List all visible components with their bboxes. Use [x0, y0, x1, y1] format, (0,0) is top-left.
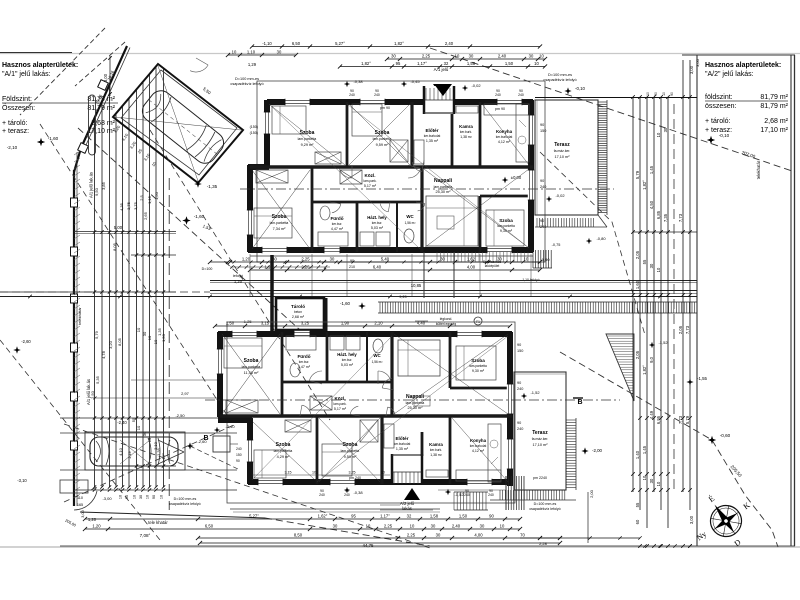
svg-text:9,59 m²: 9,59 m² [376, 143, 390, 147]
svg-text:ker.bur.: ker.bur. [299, 360, 310, 364]
svg-text:165: 165 [77, 503, 83, 507]
svg-text:5,27°: 5,27° [335, 41, 345, 46]
svg-text:Előtér: Előtér [395, 436, 408, 441]
svg-text:beton: beton [294, 310, 302, 314]
svg-text:(150): (150) [250, 131, 258, 135]
svg-text:-1,60: -1,60 [194, 214, 205, 219]
svg-text:10: 10 [145, 495, 149, 499]
svg-text:-0,10: -0,10 [575, 86, 586, 91]
svg-text:55: 55 [131, 417, 136, 422]
svg-text:D=100: D=100 [202, 267, 213, 271]
svg-text:Szoba: Szoba [244, 358, 259, 364]
svg-text:240: 240 [518, 93, 524, 97]
svg-text:3,25: 3,25 [301, 321, 310, 326]
svg-text:Kamra: Kamra [429, 442, 443, 447]
svg-text:A/1 jelű: A/1 jelű [434, 67, 449, 72]
svg-text:Terasz: Terasz [532, 430, 548, 436]
svg-text:30: 30 [663, 127, 668, 132]
svg-text:10: 10 [153, 339, 158, 344]
svg-text:30: 30 [391, 54, 396, 59]
svg-text:30: 30 [529, 54, 534, 59]
svg-text:6,40: 6,40 [373, 265, 382, 270]
svg-text:A/1 jelű lak.ás: A/1 jelű lak.ás [86, 379, 91, 405]
svg-text:1,15: 1,15 [147, 195, 152, 204]
svg-text:95: 95 [351, 514, 356, 519]
svg-text:2,05: 2,05 [635, 350, 640, 359]
svg-text:ker.burk.: ker.burk. [460, 130, 472, 134]
svg-text:pm 90: pm 90 [495, 107, 505, 111]
svg-text:1,35 m²: 1,35 m² [396, 447, 409, 451]
svg-text:-0,02: -0,02 [555, 193, 565, 198]
svg-text:30: 30 [330, 257, 335, 262]
svg-text:30: 30 [649, 478, 654, 483]
svg-text:7,35: 7,35 [663, 213, 668, 222]
svg-text:9,50: 9,50 [94, 187, 99, 196]
svg-text:+ tároló:: + tároló: [2, 120, 28, 127]
svg-text:30: 30 [142, 331, 147, 336]
svg-text:-2,10: -2,10 [7, 145, 18, 150]
svg-text:30: 30 [436, 533, 441, 538]
svg-text:3,00: 3,00 [81, 510, 85, 517]
svg-text:3,20: 3,20 [108, 340, 113, 349]
svg-text:csapadékvíz lefolyó: csapadékvíz lefolyó [529, 507, 560, 511]
svg-text:240: 240 [349, 93, 355, 97]
svg-text:6,85: 6,85 [656, 210, 661, 219]
svg-text:8,05: 8,05 [117, 337, 122, 346]
svg-text:csapadékvíz lefolyó: csapadékvíz lefolyó [230, 82, 263, 86]
svg-text:7,73: 7,73 [678, 213, 683, 222]
svg-text:5,35: 5,35 [95, 375, 100, 384]
svg-text:240: 240 [464, 493, 470, 497]
svg-text:2,28: 2,28 [539, 541, 548, 546]
svg-text:240: 240 [488, 493, 494, 497]
svg-text:D=100 mm-es: D=100 mm-es [235, 77, 259, 81]
svg-text:150: 150 [517, 349, 523, 353]
svg-text:ker.burkolat: ker.burkolat [394, 442, 411, 446]
svg-text:Házt. hely: Házt. hely [337, 352, 357, 357]
svg-text:95: 95 [396, 61, 401, 66]
svg-text:2,10: 2,10 [374, 321, 383, 326]
svg-text:-3,10: -3,10 [17, 478, 27, 483]
svg-text:2,05: 2,05 [635, 250, 640, 259]
svg-text:32: 32 [407, 514, 412, 519]
svg-text:1,17°: 1,17° [417, 61, 427, 66]
svg-text:Kamra: Kamra [459, 124, 473, 129]
svg-text:4,00: 4,00 [474, 533, 483, 538]
svg-text:5,79: 5,79 [635, 170, 640, 179]
svg-text:10: 10 [646, 92, 650, 96]
svg-text:5,00: 5,00 [114, 225, 123, 230]
svg-text:1,45: 1,45 [642, 445, 647, 454]
svg-text:Terasz: Terasz [554, 142, 570, 148]
svg-text:10: 10 [232, 50, 237, 55]
svg-text:-1,60: -1,60 [48, 136, 59, 141]
svg-text:-0,75: -0,75 [552, 243, 561, 247]
svg-text:Nappali: Nappali [434, 178, 453, 184]
svg-text:-2,40: -2,40 [117, 420, 127, 425]
svg-text:D=100 mm-es: D=100 mm-es [548, 73, 572, 77]
svg-text:lefolyó: lefolyó [233, 274, 243, 278]
svg-text:17,10 m²: 17,10 m² [533, 443, 549, 447]
svg-text:1,82°: 1,82° [642, 180, 647, 190]
svg-text:Hasznos alapterületek:: Hasznos alapterületek: [2, 62, 78, 69]
svg-text:csapadékvíz lefolyó: csapadékvíz lefolyó [169, 502, 200, 506]
svg-text:30: 30 [469, 54, 474, 59]
svg-text:30: 30 [333, 524, 338, 529]
svg-text:2,25: 2,25 [301, 257, 310, 262]
svg-text:4,10: 4,10 [118, 447, 123, 456]
svg-text:1,20: 1,20 [88, 517, 97, 522]
svg-text:4,49: 4,49 [649, 410, 654, 419]
svg-text:10: 10 [410, 524, 415, 529]
svg-text:2,25: 2,25 [384, 524, 393, 529]
svg-text:1,10 lefolyó: 1,10 lefolyó [522, 278, 539, 282]
svg-text:3,00: 3,00 [695, 58, 700, 67]
svg-text:90: 90 [540, 179, 544, 183]
svg-text:-3,00: -3,00 [102, 496, 112, 501]
svg-text:-1,52: -1,52 [454, 492, 464, 497]
svg-text:1,82°: 1,82° [361, 61, 371, 66]
svg-text:1,62°: 1,62° [318, 514, 328, 519]
svg-text:1,50: 1,50 [226, 321, 235, 326]
svg-text:-1,52: -1,52 [530, 390, 540, 395]
svg-text:4,29 m²: 4,29 m² [277, 455, 291, 459]
svg-text:2,68 m²: 2,68 m² [764, 118, 788, 125]
svg-text:5,27°: 5,27° [249, 514, 259, 519]
svg-text:4,35: 4,35 [119, 202, 124, 211]
svg-text:10: 10 [312, 471, 316, 475]
svg-text:2,97: 2,97 [181, 391, 190, 396]
svg-text:1,58: 1,58 [467, 61, 476, 66]
svg-text:telekhatár: telekhatár [77, 307, 82, 325]
svg-text:10: 10 [656, 267, 661, 272]
svg-text:Előtér: Előtér [425, 128, 438, 133]
svg-text:8,05: 8,05 [112, 242, 117, 251]
svg-text:-1,25: -1,25 [242, 319, 252, 324]
svg-text:lam.parketta: lam.parketta [270, 221, 289, 225]
svg-text:-0,02: -0,02 [471, 83, 481, 88]
svg-text:3,75: 3,75 [133, 201, 138, 210]
svg-text:10: 10 [656, 481, 661, 486]
svg-text:ker.bur.: ker.bur. [332, 222, 343, 226]
svg-text:pm 90: pm 90 [380, 106, 390, 110]
svg-text:240: 240 [517, 387, 523, 391]
svg-text:90: 90 [236, 459, 240, 463]
svg-text:Hasznos alapterületek:: Hasznos alapterületek: [705, 62, 781, 69]
svg-text:pm 2240: pm 2240 [533, 476, 547, 480]
svg-text:60: 60 [635, 519, 640, 524]
svg-text:81,79 m²: 81,79 m² [760, 94, 788, 101]
svg-text:Konyha: Konyha [470, 438, 487, 443]
svg-text:lam.parketta: lam.parketta [373, 137, 392, 141]
svg-text:6,50: 6,50 [205, 524, 214, 529]
svg-text:1,17°: 1,17° [380, 514, 390, 519]
svg-text:lam.parketta: lam.parketta [274, 449, 293, 453]
svg-text:2,05: 2,05 [678, 325, 683, 334]
svg-text:2,65: 2,65 [143, 211, 148, 220]
svg-text:telekhatár: telekhatár [756, 160, 761, 179]
svg-text:-1,55: -1,55 [697, 376, 708, 381]
svg-text:"A/1" jelű lakás:: "A/1" jelű lakás: [2, 71, 51, 78]
svg-text:6,50: 6,50 [292, 41, 301, 46]
svg-text:4,12 m²: 4,12 m² [498, 140, 511, 144]
svg-text:3,85: 3,85 [101, 181, 106, 190]
svg-text:10: 10 [455, 54, 460, 59]
svg-text:90: 90 [350, 259, 354, 263]
svg-text:240: 240 [236, 447, 242, 451]
svg-text:Szoba: Szoba [499, 218, 513, 223]
svg-text:7,73: 7,73 [685, 325, 690, 334]
svg-text:WC: WC [406, 214, 414, 219]
svg-text:10: 10 [136, 327, 141, 332]
svg-text:1,29: 1,29 [248, 62, 257, 67]
svg-text:Földszint:: Földszint: [2, 96, 32, 103]
svg-text:ker.burkolat: ker.burkolat [496, 135, 513, 139]
svg-text:2,40: 2,40 [445, 41, 454, 46]
svg-text:1,58: 1,58 [430, 514, 439, 519]
svg-text:1,20: 1,20 [242, 257, 251, 262]
svg-text:2,68 m²: 2,68 m² [292, 315, 305, 319]
svg-text:10: 10 [500, 524, 505, 529]
svg-text:8,50: 8,50 [294, 533, 303, 538]
svg-text:1,50: 1,50 [154, 191, 159, 200]
svg-text:70: 70 [520, 533, 525, 538]
svg-text:2,40: 2,40 [452, 524, 461, 529]
svg-text:csapadékvíz lefolyó: csapadékvíz lefolyó [543, 78, 576, 82]
svg-text:D=100 mm-es: D=100 mm-es [174, 497, 197, 501]
svg-text:55: 55 [642, 259, 647, 264]
svg-text:90: 90 [517, 421, 521, 425]
svg-text:7,08°: 7,08° [140, 533, 151, 538]
svg-text:2,5: 2,5 [139, 194, 144, 200]
svg-text:3,00: 3,00 [689, 515, 694, 524]
svg-text:-0,38: -0,38 [353, 490, 363, 495]
svg-text:B: B [577, 399, 582, 406]
svg-text:Fürdő: Fürdő [330, 216, 343, 221]
svg-text:3,75: 3,75 [126, 201, 131, 210]
svg-text:fa.máz.ker.: fa.máz.ker. [532, 437, 549, 441]
svg-text:7,73: 7,73 [678, 415, 683, 424]
svg-text:10: 10 [642, 475, 647, 480]
svg-text:fa.máz.ker.: fa.máz.ker. [554, 149, 571, 153]
svg-text:-1,60: -1,60 [340, 301, 351, 306]
svg-text:lam.park.: lam.park. [333, 402, 346, 406]
svg-text:3,15: 3,15 [261, 321, 270, 326]
svg-text:10,85: 10,85 [411, 283, 422, 288]
svg-text:2,00: 2,00 [589, 489, 594, 498]
svg-text:tele khatár: tele khatár [148, 520, 168, 525]
svg-text:90: 90 [670, 92, 674, 96]
svg-text:összesen:: összesen: [705, 103, 737, 110]
svg-text:-1,52: -1,52 [658, 340, 668, 345]
svg-text:1,38 m²: 1,38 m² [430, 453, 442, 457]
svg-text:150: 150 [236, 453, 242, 457]
svg-text:2,25: 2,25 [422, 54, 431, 59]
svg-text:9,0: 9,0 [649, 356, 654, 362]
svg-text:10: 10 [159, 495, 163, 499]
svg-text:4,12 m²: 4,12 m² [472, 449, 485, 453]
svg-text:A/1 jelű lak.ás: A/1 jelű lak.ás [89, 172, 94, 198]
svg-text:Tároló: Tároló [291, 304, 305, 309]
svg-text:30: 30 [440, 257, 445, 262]
svg-text:-2,50: -2,50 [175, 413, 185, 418]
svg-text:10: 10 [656, 132, 661, 137]
svg-text:10: 10 [136, 425, 141, 430]
svg-text:lakóépület: lakóépület [485, 264, 500, 268]
svg-text:240: 240 [495, 93, 501, 97]
svg-text:Házt. hely: Házt. hely [367, 215, 387, 220]
svg-text:-0,45: -0,45 [410, 79, 420, 84]
svg-text:10: 10 [534, 61, 539, 66]
svg-text:55: 55 [635, 502, 640, 507]
svg-text:1,35 m²: 1,35 m² [426, 139, 439, 143]
svg-text:D=100 mm-es: D=100 mm-es [534, 502, 557, 506]
svg-text:ker.bur.: ker.bur. [372, 221, 383, 225]
svg-text:-0,60: -0,60 [720, 433, 731, 438]
svg-text:4,40: 4,40 [417, 321, 426, 326]
svg-text:7,34 m²: 7,34 m² [273, 227, 287, 231]
svg-text:150: 150 [540, 129, 546, 133]
svg-text:25,30 m²: 25,30 m² [436, 190, 452, 194]
svg-text:-2,00: -2,00 [592, 448, 603, 453]
svg-text:-1,35: -1,35 [207, 184, 218, 189]
svg-text:5,79: 5,79 [94, 330, 99, 339]
svg-text:2,19: 2,19 [128, 452, 132, 459]
svg-text:1,40: 1,40 [635, 450, 640, 459]
svg-text:9,29 m²: 9,29 m² [301, 143, 315, 147]
svg-text:1,90: 1,90 [341, 321, 350, 326]
svg-text:30: 30 [480, 524, 485, 529]
svg-text:Szoba: Szoba [300, 130, 315, 136]
svg-text:lakás: lakás [402, 506, 412, 511]
svg-text:5,17 m²: 5,17 m² [334, 407, 347, 411]
svg-text:240: 240 [374, 93, 380, 97]
svg-text:30: 30 [431, 524, 436, 529]
svg-text:90: 90 [489, 514, 494, 519]
svg-text:ker.bur.: ker.bur. [342, 358, 353, 362]
svg-text:90: 90 [517, 343, 521, 347]
svg-text:240: 240 [319, 493, 325, 497]
svg-text:ker.burk.: ker.burk. [430, 448, 442, 452]
svg-text:pm 240: pm 240 [349, 476, 361, 480]
svg-text:17,10 m²: 17,10 m² [555, 155, 571, 159]
svg-text:90: 90 [152, 495, 156, 499]
svg-text:240: 240 [540, 185, 546, 189]
svg-text:81,79 m²: 81,79 m² [760, 103, 788, 110]
svg-text:4,78: 4,78 [101, 350, 106, 359]
svg-text:-0,38: -0,38 [353, 79, 363, 84]
svg-text:+ terasz:: + terasz: [2, 128, 29, 135]
svg-text:-2,60: -2,60 [21, 339, 31, 344]
svg-text:4,50: 4,50 [649, 200, 654, 209]
svg-text:1,62: 1,62 [467, 257, 476, 262]
svg-text:légkond.: légkond. [440, 317, 453, 321]
svg-text:1,50: 1,50 [505, 61, 514, 66]
svg-text:5,79: 5,79 [685, 415, 690, 424]
svg-text:1,50: 1,50 [161, 333, 166, 342]
svg-text:-0,90: -0,90 [540, 257, 550, 262]
svg-text:földszint:: földszint: [705, 94, 733, 101]
svg-text:lam.park.: lam.park. [363, 179, 376, 183]
svg-text:10: 10 [132, 495, 136, 499]
svg-text:110: 110 [77, 496, 83, 500]
svg-text:4,47 m²: 4,47 m² [331, 227, 344, 231]
svg-text:10: 10 [366, 524, 371, 529]
svg-text:30: 30 [277, 50, 282, 55]
svg-text:lam.parketta: lam.parketta [469, 364, 487, 368]
svg-text:9,30 m²: 9,30 m² [472, 369, 485, 373]
svg-text:10: 10 [539, 54, 544, 59]
svg-text:30: 30 [649, 263, 654, 268]
svg-text:1,38 m²: 1,38 m² [460, 135, 472, 139]
svg-text:44,75: 44,75 [363, 543, 375, 548]
svg-text:90: 90 [654, 92, 658, 96]
svg-text:5,17 m²: 5,17 m² [364, 184, 377, 188]
svg-text:-1,10: -1,10 [262, 41, 272, 46]
svg-text:10: 10 [147, 335, 152, 340]
svg-text:5,03 m²: 5,03 m² [371, 226, 384, 230]
svg-text:-2,60: -2,60 [197, 439, 207, 444]
svg-text:1,20: 1,20 [92, 524, 101, 529]
svg-text:-0,10: -0,10 [719, 133, 730, 138]
svg-text:1,45: 1,45 [649, 165, 654, 174]
svg-text:2,40: 2,40 [498, 54, 507, 59]
svg-text:240: 240 [517, 427, 523, 431]
svg-text:lam.parketta: lam.parketta [406, 401, 425, 405]
svg-text:32: 32 [444, 61, 449, 66]
svg-text:30: 30 [139, 495, 143, 499]
svg-text:ker.burkolat: ker.burkolat [424, 134, 441, 138]
svg-text:4,00: 4,00 [467, 265, 476, 270]
svg-text:+ tároló:: + tároló: [705, 118, 731, 125]
svg-text:kültéri egység: kültéri egység [436, 322, 457, 326]
svg-text:Fürdő: Fürdő [297, 354, 310, 359]
svg-text:1,60: 1,60 [635, 280, 640, 289]
svg-text:Közl.: Közl. [365, 173, 376, 178]
svg-text:240: 240 [344, 493, 350, 497]
svg-text:3,00: 3,00 [689, 65, 694, 74]
svg-text:1,56 m²: 1,56 m² [405, 221, 416, 225]
svg-text:ker.burkolat: ker.burkolat [470, 444, 487, 448]
svg-text:1,10: 1,10 [247, 50, 256, 55]
svg-text:1,20: 1,20 [234, 279, 243, 284]
svg-text:1,56 m²: 1,56 m² [372, 360, 383, 364]
svg-text:1,82°: 1,82° [642, 365, 647, 375]
svg-text:"A/2" jelű lakás:: "A/2" jelű lakás: [705, 71, 754, 78]
svg-text:6,95: 6,95 [656, 415, 661, 424]
svg-text:5,03 m²: 5,03 m² [341, 363, 354, 367]
svg-text:10: 10 [118, 495, 122, 499]
svg-text:17,10 m²: 17,10 m² [760, 127, 788, 134]
svg-text:210: 210 [349, 265, 355, 269]
svg-text:(150): (150) [250, 125, 258, 129]
svg-text:17,10 m²: 17,10 m² [87, 128, 115, 135]
svg-text:10: 10 [381, 471, 385, 475]
svg-text:3,15: 3,15 [285, 471, 292, 475]
svg-text:3,25: 3,25 [349, 471, 356, 475]
svg-text:-0,80: -0,80 [596, 236, 606, 241]
svg-text:90: 90 [517, 381, 521, 385]
svg-text:lam.parketta: lam.parketta [242, 365, 261, 369]
svg-text:1,50: 1,50 [459, 514, 468, 519]
svg-text:1,82°: 1,82° [394, 41, 404, 46]
svg-text:2,25: 2,25 [407, 533, 416, 538]
svg-text:90: 90 [540, 123, 544, 127]
